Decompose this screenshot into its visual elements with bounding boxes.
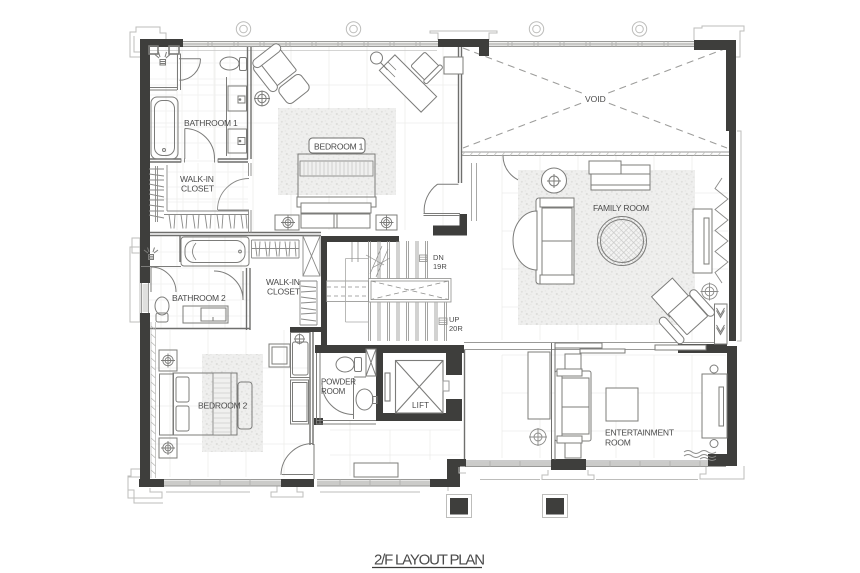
svg-text:FAMILY ROOM: FAMILY ROOM xyxy=(593,203,649,213)
svg-text:CLOSET: CLOSET xyxy=(267,287,300,297)
svg-text:19R: 19R xyxy=(433,262,447,271)
svg-text:BATHROOM 1: BATHROOM 1 xyxy=(184,118,238,128)
svg-text:ROOM: ROOM xyxy=(321,387,346,396)
svg-text:2/F LAYOUT PLAN: 2/F LAYOUT PLAN xyxy=(374,552,484,569)
svg-text:WALK-IN: WALK-IN xyxy=(266,277,300,287)
svg-text:POWDER: POWDER xyxy=(321,378,356,387)
svg-text:BEDROOM 2: BEDROOM 2 xyxy=(198,401,248,411)
svg-text:BATHROOM 2: BATHROOM 2 xyxy=(172,293,226,303)
svg-text:DN: DN xyxy=(433,253,444,262)
svg-text:WALK-IN: WALK-IN xyxy=(180,174,214,184)
svg-text:BEDROOM 1: BEDROOM 1 xyxy=(314,142,364,152)
svg-text:CLOSET: CLOSET xyxy=(181,184,214,194)
svg-text:VOID: VOID xyxy=(585,94,606,104)
svg-text:20R: 20R xyxy=(449,324,463,333)
svg-text:LIFT: LIFT xyxy=(412,401,429,410)
svg-text:ENTERTAINMENT: ENTERTAINMENT xyxy=(605,428,674,438)
svg-text:ROOM: ROOM xyxy=(605,438,631,448)
svg-text:UP: UP xyxy=(449,315,459,324)
